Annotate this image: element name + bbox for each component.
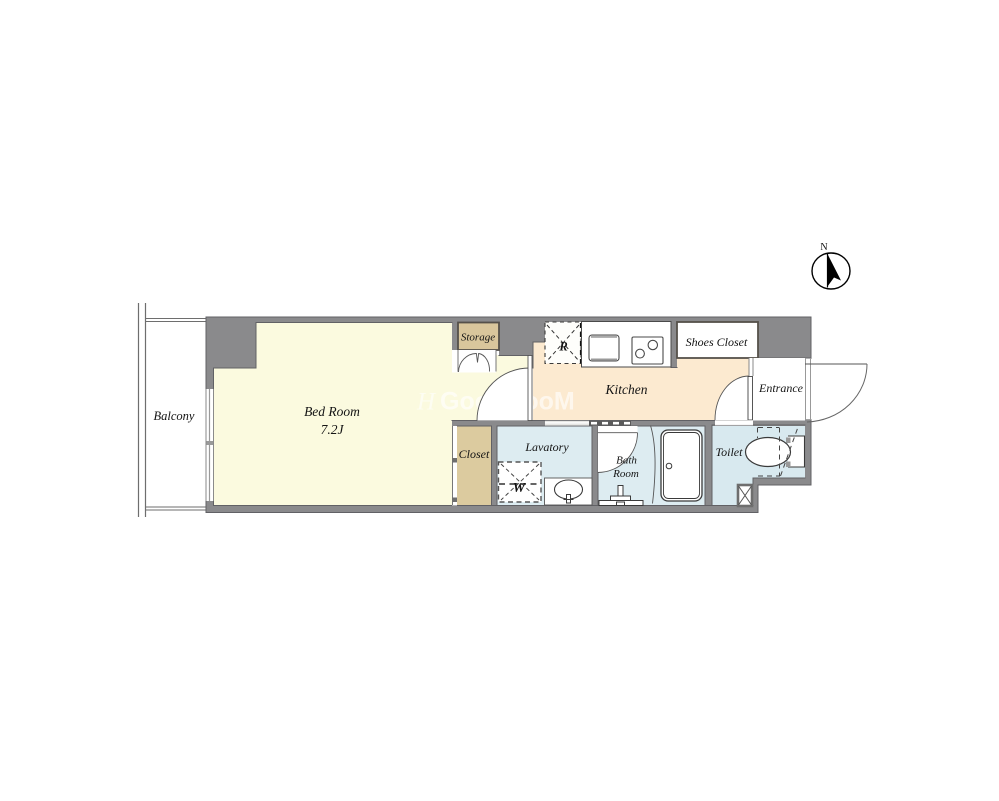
svg-text:Lavatory: Lavatory	[524, 440, 569, 454]
svg-text:Entrance: Entrance	[758, 381, 804, 395]
svg-text:Toilet: Toilet	[716, 445, 744, 459]
svg-text:Kitchen: Kitchen	[605, 382, 648, 397]
svg-text:Shoes Closet: Shoes Closet	[686, 335, 748, 349]
svg-text:H: H	[416, 389, 437, 416]
svg-text:Closet: Closet	[459, 447, 490, 461]
svg-text:R: R	[558, 340, 567, 354]
svg-text:Balcony: Balcony	[154, 409, 195, 423]
svg-text:N: N	[820, 242, 827, 253]
svg-text:Storage: Storage	[461, 332, 495, 344]
svg-text:Bed Room: Bed Room	[304, 404, 360, 419]
svg-text:W: W	[513, 481, 527, 496]
svg-text:Bath: Bath	[616, 455, 637, 467]
svg-text:Room: Room	[612, 468, 639, 480]
svg-text:7.2J: 7.2J	[321, 422, 345, 437]
